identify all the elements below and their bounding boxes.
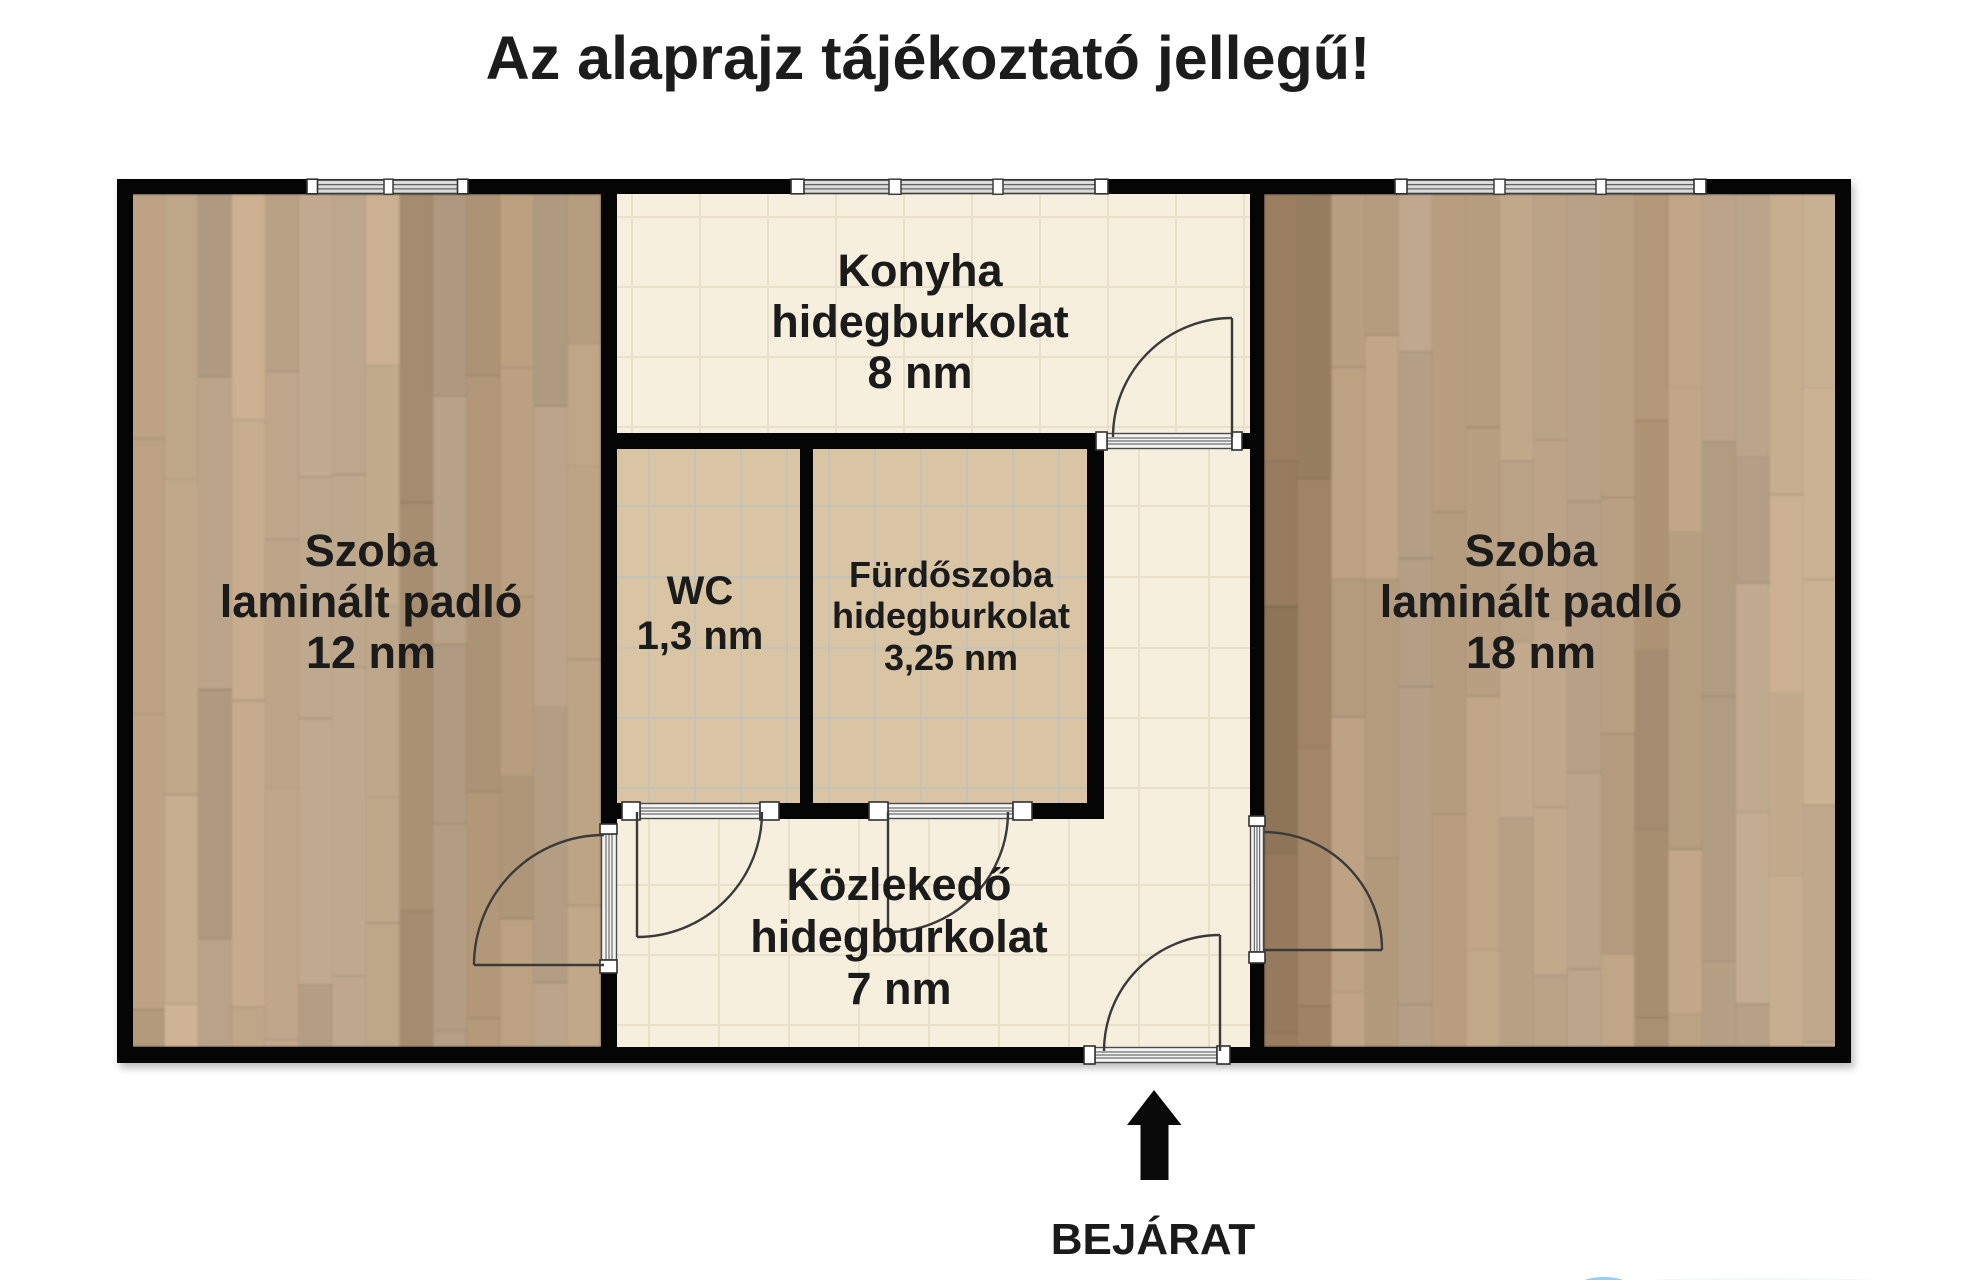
svg-text:7 nm: 7 nm [846, 963, 951, 1014]
svg-text:hidegburkolat: hidegburkolat [771, 296, 1069, 347]
svg-text:BEJÁRAT: BEJÁRAT [1051, 1214, 1256, 1264]
svg-text:Fürdőszoba: Fürdőszoba [849, 554, 1054, 595]
svg-text:Szoba: Szoba [1465, 525, 1598, 576]
svg-text:18 nm: 18 nm [1466, 627, 1596, 678]
svg-text:12 nm: 12 nm [306, 627, 436, 678]
svg-text:WC: WC [667, 569, 734, 613]
svg-text:Közlekedő: Közlekedő [786, 859, 1011, 910]
svg-text:Konyha: Konyha [837, 245, 1003, 296]
svg-text:Az alaprajz tájékoztató jelleg: Az alaprajz tájékoztató jellegű! [486, 24, 1371, 92]
svg-text:3,25 nm: 3,25 nm [884, 637, 1018, 678]
svg-text:hidegburkolat: hidegburkolat [750, 911, 1048, 962]
svg-text:laminált padló: laminált padló [220, 576, 523, 627]
svg-text:hidegburkolat: hidegburkolat [832, 595, 1070, 636]
svg-text:laminált padló: laminált padló [1380, 576, 1683, 627]
svg-text:Szoba: Szoba [305, 525, 438, 576]
svg-text:1,3 nm: 1,3 nm [637, 614, 764, 658]
svg-text:8 nm: 8 nm [867, 347, 972, 398]
